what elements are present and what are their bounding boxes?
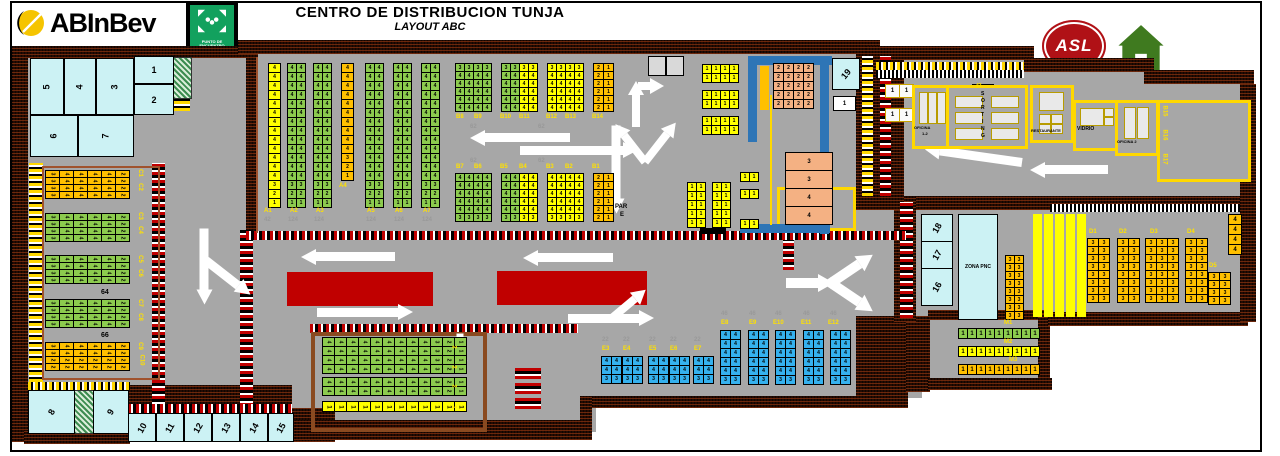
rack-cell-value: 3 <box>807 159 810 165</box>
rack-cell-value: 4 <box>326 65 329 71</box>
rack-cell-value: 4 <box>683 358 686 364</box>
rack-cell-value: 3 <box>1092 256 1095 262</box>
rack-cell-value: 4 <box>386 368 392 371</box>
rack-cell-value: 4 <box>300 119 303 125</box>
rack-cell-value: 4 <box>92 272 98 275</box>
safety-stripe <box>128 404 292 413</box>
rack-cell-value: 4 <box>386 381 392 384</box>
rack-cell-value: 2 <box>120 258 126 261</box>
rack-cell-value: 4 <box>78 345 84 348</box>
rack-cell-value: 4 <box>397 110 400 116</box>
rack-cell-value: 4 <box>64 309 70 312</box>
rack-cell-value: 4 <box>434 173 437 179</box>
rack-cell-value: 4 <box>374 359 380 362</box>
rack-cell-wy1: 1 <box>885 84 900 98</box>
rack-cell-value: 4 <box>397 173 400 179</box>
rack-cell-value: 4 <box>369 173 372 179</box>
rack-cell-value: 4 <box>560 175 563 181</box>
flow-arrow-head <box>1030 162 1045 178</box>
rack-cell-value: 4 <box>350 390 356 393</box>
zone-label: A4 <box>339 183 347 189</box>
wall <box>866 46 1034 60</box>
wall <box>238 40 880 54</box>
rack-cell-value: 3 <box>1103 264 1106 270</box>
rack-cell-E3: 3 <box>611 374 622 384</box>
rack-cell-A3: 1 <box>322 198 332 208</box>
rack-cell-value: 1 <box>691 220 694 226</box>
rack-cell-A7: 1 <box>430 198 440 208</box>
rack-cell-salmon-block: 3 <box>785 152 833 171</box>
rack-cell-value: 4 <box>551 97 554 103</box>
staging-block <box>287 272 433 306</box>
rack-cell-value: 4 <box>605 367 608 373</box>
rack-cell-B10-B11: 4 <box>528 103 538 112</box>
zone-label: E8 <box>721 320 728 326</box>
room-11: 11 <box>156 413 184 442</box>
rack-cell-value: 4 <box>406 65 409 71</box>
rack-cell-value: 4 <box>273 128 276 134</box>
rack-cell-value: 4 <box>523 199 526 205</box>
rack-cell-value: 3 <box>523 215 526 221</box>
safety-stripe <box>900 202 913 318</box>
rack-cell-value: 4 <box>369 74 372 80</box>
rack-cell-value: 4 <box>326 83 329 89</box>
rack-cell-value: 1 <box>273 200 276 206</box>
rack-cell-value: 3 <box>425 182 428 188</box>
rack-cell-C4: 2 <box>115 320 130 328</box>
rack-cell-value: 4 <box>64 230 70 233</box>
rack-cell-value: 4 <box>92 316 98 319</box>
rack-cell-value: 4 <box>350 368 356 371</box>
room-9: 9 <box>93 390 129 434</box>
zone-label: M2 <box>1004 339 1012 345</box>
rack-cell-value: 4 <box>78 223 84 226</box>
rack-cell-value: 2 <box>597 81 600 87</box>
zone-label: 66 <box>101 332 109 339</box>
room-restaurante <box>1030 85 1074 143</box>
zone-label: 64 <box>101 289 109 296</box>
rack-cell-value: 4 <box>300 83 303 89</box>
rack-cell-value: 4 <box>422 368 428 371</box>
rack-cell-value: 4 <box>64 352 70 355</box>
rack-cell-value: 4 <box>406 92 409 98</box>
rack-cell-value: 4 <box>350 341 356 344</box>
rack-cell-value: 1 <box>410 405 416 408</box>
rack-cell-value: 1 <box>1015 367 1018 373</box>
rack-cell-value: 1 <box>961 331 964 337</box>
rack-cell-value: 4 <box>291 65 294 71</box>
rack-cell-value: 2 <box>300 191 303 197</box>
rack-cell-value: 4 <box>578 97 581 103</box>
room-label: 4 <box>75 84 85 89</box>
rack-cell-D5: 3 <box>1219 296 1231 305</box>
rack-cell-B7-B6: 3 <box>482 213 492 222</box>
rack-cell-value: 4 <box>78 258 84 261</box>
rack-cell-value: 4 <box>707 367 710 373</box>
rack-cell-value: 2 <box>807 65 810 71</box>
rack-cell-value: 1 <box>706 101 709 107</box>
rack-cell-value: 4 <box>326 128 329 134</box>
rack-cell-value: 4 <box>486 73 489 79</box>
room-pane <box>1051 114 1063 124</box>
zone-label: C10 <box>139 354 145 365</box>
rack-cell-value: 2 <box>120 323 126 326</box>
zone-label: 124 <box>288 217 298 223</box>
rack-cell-value: 4 <box>300 92 303 98</box>
zone-label: 46 <box>803 311 810 317</box>
rack-cell-value: 4 <box>486 199 489 205</box>
rack-cell-value: 3 <box>1172 288 1175 294</box>
zone-label: D2 <box>1119 229 1127 235</box>
rack-cell-value: 4 <box>762 350 765 356</box>
rack-cell-value: 4 <box>106 180 112 183</box>
rack-cell-value: 2 <box>378 191 381 197</box>
rack-cell-value: 4 <box>64 237 70 240</box>
rack-cell-value: 1 <box>706 75 709 81</box>
rack-cell-dock-4: 4 <box>1228 244 1242 255</box>
rack-cell-value: 4 <box>434 74 437 80</box>
rack-cell-value: 4 <box>523 175 526 181</box>
rack-cell-C-top: 4 <box>73 191 88 199</box>
room-pane <box>955 96 983 108</box>
rack-cell-value: 4 <box>514 207 517 213</box>
rack-cell-M1r: 1 <box>1030 328 1040 339</box>
safety-stripe <box>240 230 253 422</box>
rack-cell-value: 4 <box>752 350 755 356</box>
rack-cell-value: 4 <box>64 265 70 268</box>
rack-cell-value: 2 <box>446 381 452 384</box>
rack-cell-value: 4 <box>406 173 409 179</box>
rack-cell-value: 3 <box>1103 288 1106 294</box>
rack-cell-value: 4 <box>834 368 837 374</box>
rack-cell-value: 4 <box>300 146 303 152</box>
rack-cell-value: 2 <box>120 223 126 226</box>
room-oficina-1 <box>912 85 950 149</box>
rack-cell-value: 3 <box>369 182 372 188</box>
rack-cell-value: 3 <box>551 65 554 71</box>
rack-cell-value: 4 <box>362 390 368 393</box>
rack-cell-value: 4 <box>326 173 329 179</box>
rack-cell-value: 4 <box>468 175 471 181</box>
flow-arrow-body <box>520 146 623 155</box>
rack-cell-value: 1 <box>905 88 908 94</box>
room-util <box>666 56 684 76</box>
rack-cell-value: 4 <box>662 358 665 364</box>
rack-cell-w1: 1 <box>833 96 856 111</box>
room-16: 16 <box>921 268 953 306</box>
rack-cell-value: 4 <box>505 175 508 181</box>
rack-cell-value: 2 <box>434 191 437 197</box>
rack-cell-value: 3 <box>532 65 535 71</box>
rack-cell-value: 4 <box>317 173 320 179</box>
rack-cell-value: 4 <box>817 332 820 338</box>
rack-cell-value: 4 <box>374 390 380 393</box>
rack-cell-value: 4 <box>78 352 84 355</box>
rack-cell-value: 3 <box>1122 256 1125 262</box>
rack-cell-value: 2 <box>797 65 800 71</box>
rack-cell-salmon-grid: 2 <box>803 99 814 109</box>
rack-cell-value: 3 <box>1161 272 1164 278</box>
room-3: 3 <box>96 58 134 115</box>
rack-cell-D1: 3 <box>1098 294 1110 303</box>
rack-cell-value: 4 <box>300 173 303 179</box>
rack-cell-value: 3 <box>605 376 608 382</box>
rack-cell-value: 4 <box>291 146 294 152</box>
room-label: 3 <box>110 84 120 89</box>
rack-cell-value: 3 <box>1133 248 1136 254</box>
rack-cell-value: 4 <box>369 65 372 71</box>
rack-cell-value: 1 <box>607 175 610 181</box>
rack-cell-value: 3 <box>779 377 782 383</box>
rack-cell-C2: 4 <box>59 234 74 242</box>
zone-label: A1 <box>264 208 272 214</box>
rack-cell-value: 2 <box>120 180 126 183</box>
rack-cell-value: 4 <box>64 258 70 261</box>
rack-cell-value: 4 <box>406 101 409 107</box>
rack-cell-value: 2 <box>597 207 600 213</box>
rack-cell-value: 4 <box>273 92 276 98</box>
rack-cell-value: 4 <box>291 74 294 80</box>
rack-cell-value: 4 <box>434 119 437 125</box>
rack-cell-value: 2 <box>777 74 780 80</box>
rack-cell-value: 3 <box>1201 240 1204 246</box>
rack-cell-value: 3 <box>1018 313 1021 319</box>
rack-cell-value: 4 <box>386 359 392 362</box>
rack-cell-value: 4 <box>734 368 737 374</box>
rack-cell-value: 1 <box>607 81 610 87</box>
rack-cell-C5: 2 <box>73 363 88 371</box>
rack-cell-value: 4 <box>532 207 535 213</box>
flow-arrow-body <box>1045 165 1108 174</box>
rack-cell-value: 4 <box>569 199 572 205</box>
room-pane <box>955 128 983 140</box>
rack-cell-value: 1 <box>724 118 727 124</box>
rack-cell-value: 1 <box>843 101 846 107</box>
rack-cell-value: 4 <box>92 230 98 233</box>
rack-cell-value: 4 <box>378 173 381 179</box>
rack-cell-value: 4 <box>106 265 112 268</box>
rack-cell-value: 4 <box>78 272 84 275</box>
rack-cell-value: 1 <box>997 331 1000 337</box>
rack-cell-value: 4 <box>532 183 535 189</box>
rack-cell-value: 4 <box>734 350 737 356</box>
rack-cell-value: 4 <box>106 216 112 219</box>
rack-cell-value: 3 <box>1103 296 1106 302</box>
rack-cell-value: 2 <box>120 237 126 240</box>
rack-cell-pick-1a: 1 <box>729 73 739 83</box>
rack-cell-B14: 1 <box>603 103 614 112</box>
rack-cell-value: 1 <box>733 101 736 107</box>
room-label: 19 <box>839 67 853 81</box>
rack-cell-value: 4 <box>477 73 480 79</box>
rack-cell-value: 4 <box>468 89 471 95</box>
rack-cell-value: 4 <box>459 183 462 189</box>
rack-cell-value: 4 <box>406 137 409 143</box>
rack-cell-value: 4 <box>346 146 349 152</box>
rack-cell-value: 4 <box>369 92 372 98</box>
rack-cell-value: 1 <box>1015 349 1018 355</box>
rack-cell-value: 4 <box>92 194 98 197</box>
safety-stripe <box>876 62 1024 70</box>
rack-cell-value: 4 <box>569 175 572 181</box>
zone-label: B8 <box>456 114 464 120</box>
rack-cell-value: 4 <box>779 341 782 347</box>
rack-cell-value: 3 <box>1190 248 1193 254</box>
rack-cell-value: 4 <box>468 81 471 87</box>
rack-cell-value: 1 <box>988 349 991 355</box>
rack-cell-value: 4 <box>523 183 526 189</box>
zone-label: D5 <box>1209 263 1217 269</box>
rack-cell-value: 1 <box>979 367 982 373</box>
rack-cell-value: 4 <box>106 187 112 190</box>
rack-cell-value: 4 <box>844 332 847 338</box>
rack-cell-value: 2 <box>597 215 600 221</box>
rack-cell-value: 2 <box>797 83 800 89</box>
rack-cell-value: 3 <box>50 309 56 312</box>
rack-cell-value: 4 <box>346 119 349 125</box>
room-10: 10 <box>128 413 156 442</box>
rack-cell-value: 4 <box>346 101 349 107</box>
rack-cell-value: 1 <box>706 118 709 124</box>
rack-cell-value: 4 <box>78 180 84 183</box>
rack-cell-value: 4 <box>662 367 665 373</box>
rack-cell-value: 4 <box>532 89 535 95</box>
rack-cell-value: 4 <box>779 359 782 365</box>
rack-cell-value: 1 <box>725 220 728 226</box>
rack-cell-value: 3 <box>1213 290 1216 296</box>
rack-cell-value: 4 <box>779 368 782 374</box>
rack-cell-value: 4 <box>397 128 400 134</box>
rack-cell-value: 4 <box>92 345 98 348</box>
rack-cell-value: 3 <box>1133 296 1136 302</box>
rack-cell-value: 3 <box>1201 256 1204 262</box>
rack-cell-value: 4 <box>410 381 416 384</box>
rack-cell-value: 2 <box>92 366 98 369</box>
rack-cell-value: 2 <box>787 101 790 107</box>
rack-cell-value: 4 <box>724 341 727 347</box>
rack-cell-value: 3 <box>50 216 56 219</box>
rack-cell-value: 4 <box>397 146 400 152</box>
rack-cell-value: 4 <box>406 128 409 134</box>
rack-cell-value: 4 <box>300 65 303 71</box>
rack-cell-A5: 1 <box>374 198 384 208</box>
rack-cell-value: 4 <box>338 381 344 384</box>
rack-cell-value: 3 <box>615 376 618 382</box>
rack-cell-value: 4 <box>762 359 765 365</box>
rack-cell-value: 3 <box>1190 264 1193 270</box>
zone-label: B4 <box>519 164 527 170</box>
rack-cell-value: 3 <box>1092 264 1095 270</box>
rack-cell-value: 2 <box>78 359 84 362</box>
rack-cell-value: 1 <box>607 191 610 197</box>
zone-label: O <box>981 99 985 104</box>
rack-cell-value: 4 <box>551 81 554 87</box>
rack-cell-value: 4 <box>834 350 837 356</box>
wall <box>928 378 1052 390</box>
rack-cell-value: 4 <box>514 97 517 103</box>
rack-cell-value: 3 <box>505 215 508 221</box>
zone-label: C2 <box>137 183 143 191</box>
rack-cell-value: 1 <box>369 200 372 206</box>
rack-cell-value: 1 <box>326 200 329 206</box>
rack-cell-value: 2 <box>106 359 112 362</box>
rack-cell-value: 3 <box>468 215 471 221</box>
rack-cell-value: 4 <box>78 237 84 240</box>
rack-cell-value: 3 <box>1103 280 1106 286</box>
rack-cell-value: 4 <box>92 258 98 261</box>
rack-cell-value: 3 <box>1172 264 1175 270</box>
rack-cell-value: 4 <box>326 341 332 344</box>
rack-cell-value: 3 <box>697 376 700 382</box>
zone-label: B10 <box>500 114 511 120</box>
rack-cell-value: 4 <box>326 381 332 384</box>
rack-cell-value: 4 <box>551 89 554 95</box>
rack-cell-value: 3 <box>326 182 329 188</box>
rack-cell-value: 3 <box>50 265 56 268</box>
rack-cell-value: 2 <box>78 366 84 369</box>
zone-label: 46 <box>749 311 756 317</box>
rack-cell-value: 3 <box>1103 240 1106 246</box>
rack-cell-value: 4 <box>300 110 303 116</box>
rack-cell-value: 4 <box>78 194 84 197</box>
zone-label: I <box>982 120 983 125</box>
zone-label: VIDRIO <box>1077 127 1094 132</box>
room-17: 17 <box>921 241 953 269</box>
rack-cell-value: 1 <box>458 359 464 362</box>
rack-cell-value: 4 <box>386 350 392 353</box>
safety-stripe <box>515 368 541 379</box>
rack-cell-value: 4 <box>317 65 320 71</box>
room-util <box>648 56 666 76</box>
zone-label: 62 <box>470 158 477 164</box>
zone-label: A3 <box>316 208 324 214</box>
rack-cell-value: 4 <box>397 137 400 143</box>
rack-cell-value: 4 <box>291 101 294 107</box>
safety-stripe <box>28 382 130 390</box>
rack-cell-C2: 4 <box>73 234 88 242</box>
rack-cell-value: 1 <box>326 405 332 408</box>
rack-cell-value: 2 <box>317 191 320 197</box>
rack-cell-value: 4 <box>410 390 416 393</box>
rack-cell-value: 2 <box>797 92 800 98</box>
wall <box>12 46 28 442</box>
zone-label: A7 <box>423 208 431 214</box>
flow-arrow-head <box>470 130 485 146</box>
marking <box>1077 214 1086 317</box>
rack-cell-value: 4 <box>569 207 572 213</box>
rack-cell-value: 4 <box>551 175 554 181</box>
rack-cell-value: 4 <box>397 119 400 125</box>
rack-cell-value: 2 <box>777 101 780 107</box>
rack-cell-value: 3 <box>1009 265 1012 271</box>
rack-cell-value: 1 <box>724 127 727 133</box>
rack-cell-value: 3 <box>1018 305 1021 311</box>
safety-stripe <box>515 398 541 409</box>
zone-label: E10 <box>773 320 784 326</box>
room-2: 2 <box>134 84 174 115</box>
rack-cell-value: 1 <box>607 65 610 71</box>
rack-cell-value: 1 <box>607 207 610 213</box>
safety-stripe <box>862 56 873 196</box>
rack-cell-value: 4 <box>64 316 70 319</box>
rack-cell-value: 3 <box>1009 297 1012 303</box>
room-pane <box>1124 107 1136 139</box>
rack-cell-value: 4 <box>374 381 380 384</box>
room-label: 11 <box>163 421 176 434</box>
rack-cell-value: 1 <box>1006 367 1009 373</box>
rack-cell-value: 4 <box>398 341 404 344</box>
room-15: 15 <box>268 413 294 442</box>
